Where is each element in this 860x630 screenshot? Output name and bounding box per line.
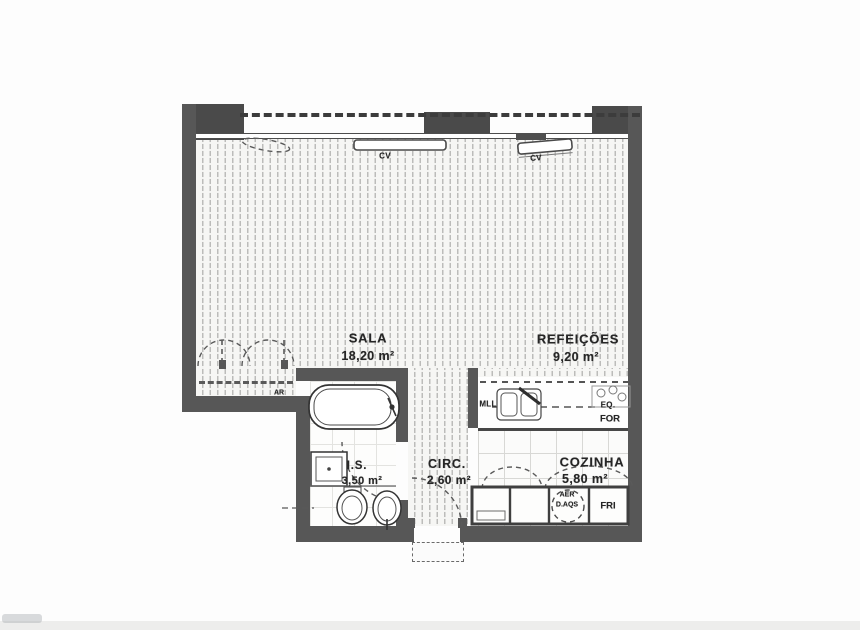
radiator-sala [354,140,446,150]
room-label-cozinha: COZINHA [560,455,625,470]
oven-label: FOR [600,414,620,425]
room-label-sala: SALA [349,331,388,346]
radiator-refeicoes [518,139,573,158]
water-heater-label-1: AER [560,492,575,499]
hob-burner-1 [597,389,605,397]
bathtub [309,385,399,429]
wardrobe-door-swing-right [242,340,294,366]
water-heater-label-2: D.AQS [556,502,578,509]
room-label-circ: CIRC. [428,457,466,471]
floor-plan-page: SALA 18,20 m² REFEIÇÕES 9,20 m² COZINHA … [0,0,860,630]
toilet [337,490,367,524]
radiator-label-refeicoes: CV [530,153,542,163]
room-area-circ: 2,60 m² [427,473,471,487]
plan-linework [0,0,860,630]
room-area-cozinha: 5,80 m² [562,472,608,486]
hob-burner-2 [609,386,617,394]
scan-edge-band [0,621,860,630]
radiator-label-sala: CV [379,152,391,161]
scan-smudge [2,614,42,623]
room-area-refeicoes: 9,20 m² [553,350,599,364]
room-area-sala: 18,20 m² [341,349,394,363]
balcony-door-leaf [241,135,290,154]
dishwasher-label: MLL [479,400,496,409]
washbasin-drain [327,467,331,471]
hob-burner-3 [618,393,626,401]
room-area-is: 3,50 m² [342,475,383,487]
hob-label: EQ. [601,401,616,410]
fridge-label: FRI [600,501,615,512]
room-label-is: I.S. [347,460,367,472]
room-label-refeicoes: REFEIÇÕES [537,332,619,347]
wardrobe-label: AR [274,390,284,397]
